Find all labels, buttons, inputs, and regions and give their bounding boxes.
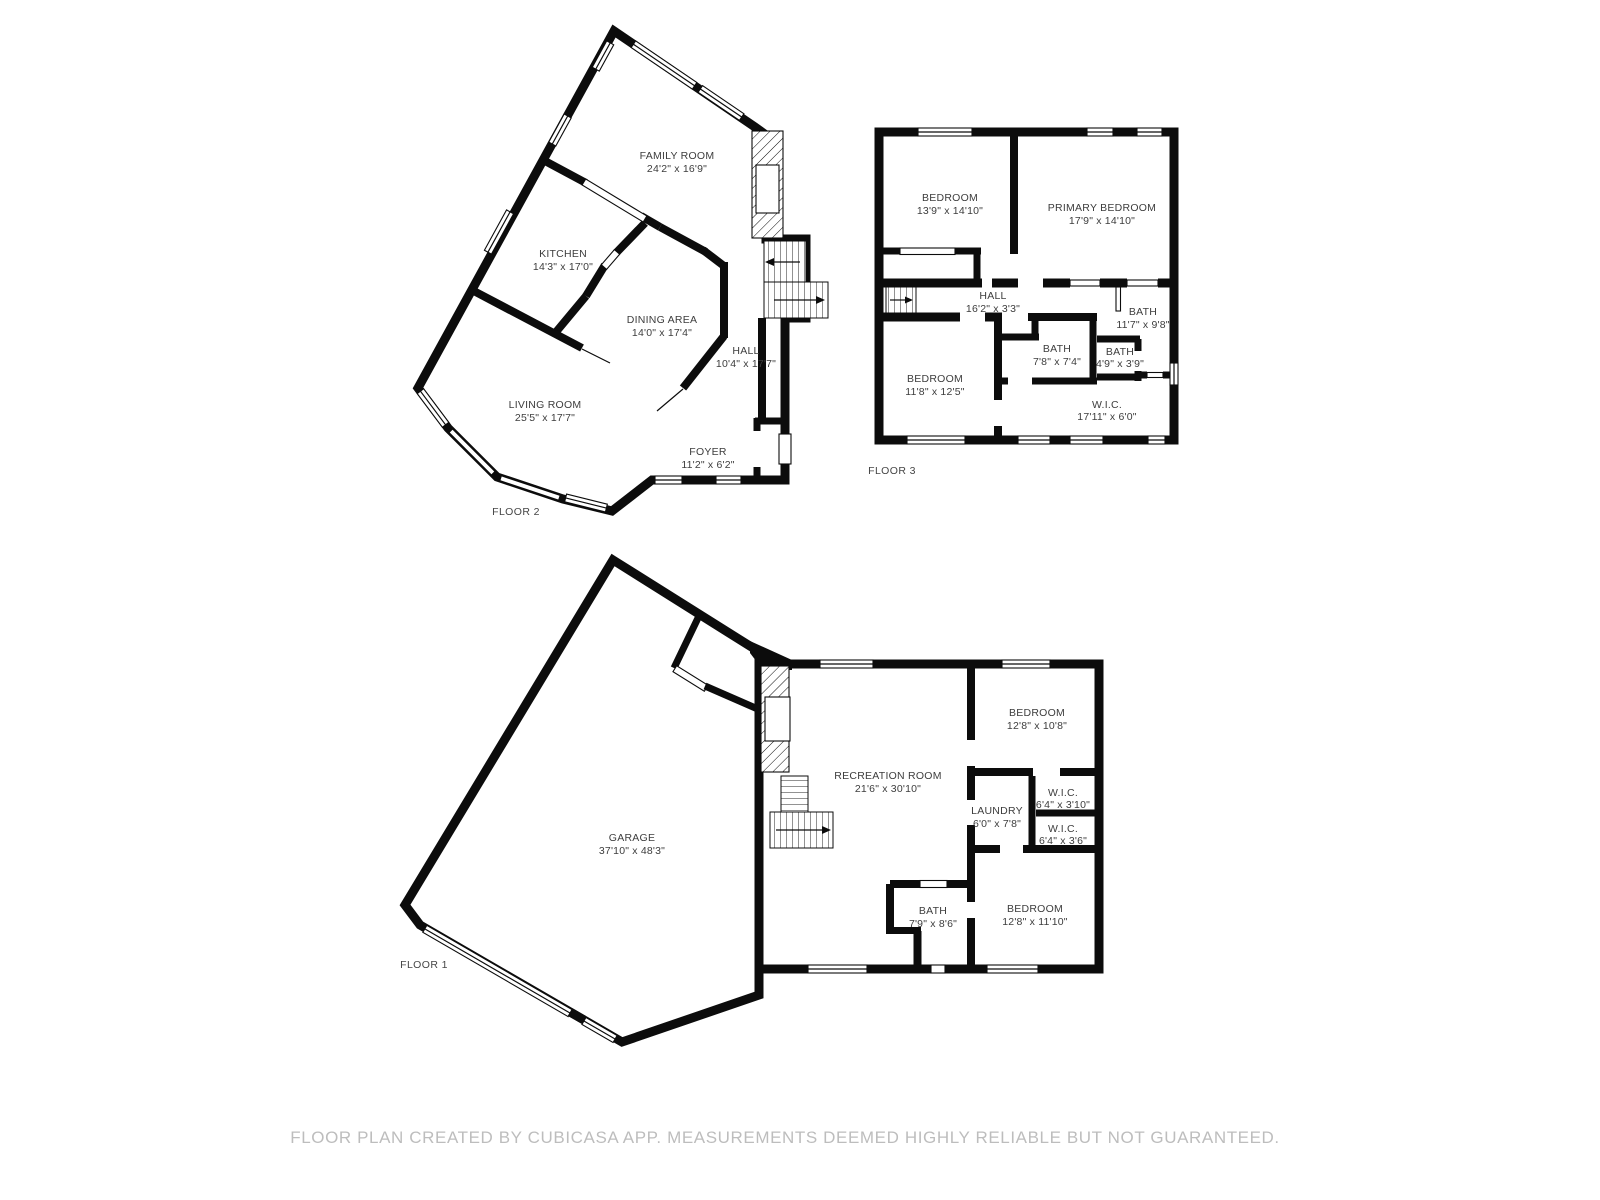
room-dims-bedroom-f1b: 12'8" x 11'10" xyxy=(1002,916,1068,928)
room-dims-kitchen: 14'3" x 17'0" xyxy=(533,261,593,273)
floor-2-label: FLOOR 2 xyxy=(492,506,540,518)
room-name-foyer: FOYER xyxy=(689,446,727,458)
floor-3-plan: BEDROOM 13'9" x 14'10" PRIMARY BEDROOM 1… xyxy=(868,128,1178,477)
room-name-bath-f3a: BATH xyxy=(1129,306,1157,318)
floor2-firebox xyxy=(756,165,779,213)
room-dims-bedroom-f1a: 12'8" x 10'8" xyxy=(1007,720,1067,732)
floor-plan-canvas: FAMILY ROOM 24'2" x 16'9" KITCHEN 14'3" … xyxy=(0,0,1600,1200)
floor-1-label: FLOOR 1 xyxy=(400,959,448,971)
room-name-living-room: LIVING ROOM xyxy=(509,399,582,411)
room-dims-bath-f3c: 4'9" x 3'9" xyxy=(1096,358,1144,370)
room-name-dining-area: DINING AREA xyxy=(627,314,697,326)
room-name-hall-f3: HALL xyxy=(979,290,1006,302)
room-name-bedroom-f1a: BEDROOM xyxy=(1009,707,1065,719)
room-dims-bedroom-f3b: 11'8" x 12'5" xyxy=(905,386,964,398)
floor-3-label: FLOOR 3 xyxy=(868,465,916,477)
room-name-recreation-room: RECREATION ROOM xyxy=(834,770,941,782)
room-name-garage: GARAGE xyxy=(609,832,655,844)
room-dims-wic-f1a: 6'4" x 3'10" xyxy=(1036,799,1090,811)
floor1-firebox xyxy=(765,697,790,741)
room-dims-bath-f1: 7'9" x 8'6" xyxy=(909,918,957,930)
room-name-family-room: FAMILY ROOM xyxy=(640,150,715,162)
room-dims-bath-f3b: 7'8" x 7'4" xyxy=(1033,356,1081,368)
floor-plan-page: FAMILY ROOM 24'2" x 16'9" KITCHEN 14'3" … xyxy=(0,0,1600,1200)
room-dims-primary-bedroom: 17'9" x 14'10" xyxy=(1069,215,1135,227)
room-dims-wic-f1b: 6'4" x 3'6" xyxy=(1039,835,1087,847)
room-dims-bedroom-f3a: 13'9" x 14'10" xyxy=(917,205,983,217)
room-dims-recreation-room: 21'6" x 30'10" xyxy=(855,783,921,795)
room-dims-foyer: 11'2" x 6'2" xyxy=(681,459,734,471)
room-name-hall-f2: HALL xyxy=(732,345,759,357)
room-name-bedroom-f1b: BEDROOM xyxy=(1007,903,1063,915)
room-name-bath-f3b: BATH xyxy=(1043,343,1071,355)
room-name-wic-f3: W.I.C. xyxy=(1092,399,1122,411)
room-dims-garage: 37'10" x 48'3" xyxy=(599,845,665,857)
room-name-bath-f3c: BATH xyxy=(1106,346,1134,358)
room-name-kitchen: KITCHEN xyxy=(539,248,587,260)
room-dims-hall-f3: 16'2" x 3'3" xyxy=(966,303,1020,315)
floor2-exterior-walls xyxy=(418,31,806,511)
room-name-wic-f1a: W.I.C. xyxy=(1048,787,1078,799)
room-dims-dining-area: 14'0" x 17'4" xyxy=(632,327,692,339)
room-dims-living-room: 25'5" x 17'7" xyxy=(515,412,575,424)
room-name-bath-f1: BATH xyxy=(919,905,947,917)
room-name-primary-bedroom: PRIMARY BEDROOM xyxy=(1048,202,1156,214)
room-name-laundry: LAUNDRY xyxy=(971,805,1023,817)
floor-2-plan: FAMILY ROOM 24'2" x 16'9" KITCHEN 14'3" … xyxy=(417,31,828,518)
room-name-bedroom-f3b: BEDROOM xyxy=(907,373,963,385)
floor1-garage-walls xyxy=(405,560,759,1042)
floor-1-plan: GARAGE 37'10" x 48'3" RECREATION ROOM 21… xyxy=(400,560,1099,1042)
floor3-stairs xyxy=(886,287,916,313)
room-dims-family-room: 24'2" x 16'9" xyxy=(647,163,707,175)
room-name-bedroom-f3a: BEDROOM xyxy=(922,192,978,204)
footer-disclaimer: FLOOR PLAN CREATED BY CUBICASA APP. MEAS… xyxy=(290,1128,1280,1147)
room-dims-bath-f3a: 11'7" x 9'8" xyxy=(1116,319,1169,331)
room-dims-wic-f3: 17'11" x 6'0" xyxy=(1077,411,1136,423)
room-dims-hall-f2: 10'4" x 17'7" xyxy=(716,358,776,370)
floor2-stairs xyxy=(764,241,828,318)
room-name-wic-f1b: W.I.C. xyxy=(1048,823,1078,835)
room-dims-laundry: 6'0" x 7'8" xyxy=(973,818,1021,830)
